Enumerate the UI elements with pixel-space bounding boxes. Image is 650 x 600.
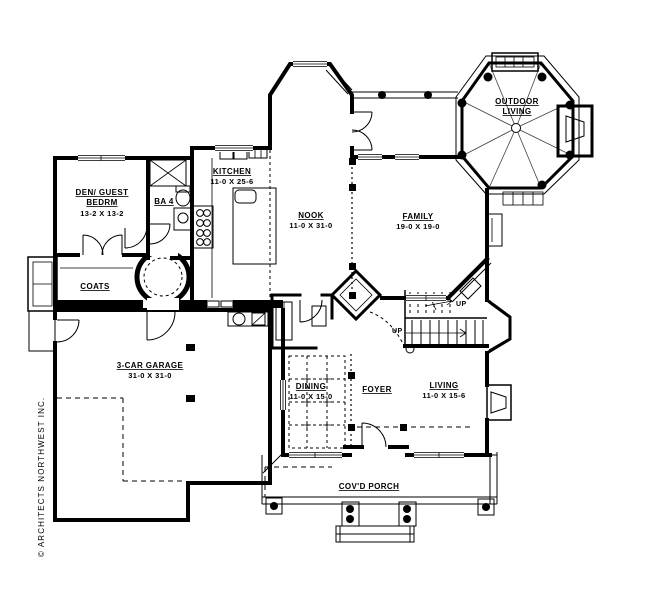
family-media-recess: [487, 214, 502, 246]
label-family-dims: 19-0 X 19-0: [396, 222, 440, 231]
dining-coffer-grid: [289, 356, 345, 448]
foyer-colonnade: [348, 354, 472, 448]
label-family: FAMILY: [403, 212, 434, 221]
label-coats: COATS: [80, 282, 110, 291]
stair-treads-lower: [412, 320, 483, 344]
covered-porch: [262, 452, 497, 542]
bath-door: [150, 224, 170, 244]
label-up-2: UP: [392, 328, 403, 335]
den-double-doors: [83, 235, 122, 255]
left-chimney: [28, 257, 57, 311]
label-dining: DINING: [296, 382, 326, 391]
toilet: [176, 186, 190, 206]
label-bath: BA 4: [154, 197, 174, 206]
powder-door: [300, 300, 322, 322]
hall-pocket-door: [207, 301, 219, 307]
garage-post: [186, 344, 195, 351]
octagon-center: [512, 124, 521, 133]
label-den-line2: BEDRM: [86, 198, 117, 207]
label-den-dims: 13-2 X 13-2: [80, 209, 124, 218]
label-dining-dims: 11-0 X 15-0: [289, 392, 332, 401]
label-garage: 3-CAR GARAGE: [117, 361, 184, 370]
nook-french-doors: [352, 112, 372, 150]
label-outdoor-line1: OUTDOOR: [495, 97, 539, 106]
linen-closet: [150, 160, 186, 186]
pantry-powder: [272, 271, 380, 348]
label-garage-dims: 31-0 X 31-0: [128, 371, 172, 380]
rotunda-door: [147, 312, 175, 340]
outdoor-fireplace: [558, 106, 592, 156]
label-outdoor-line2: LIVING: [502, 107, 531, 116]
copyright-text: © ARCHITECTS NORTHWEST INC.: [37, 397, 46, 557]
label-nook-dims: 11-0 X 31-0: [289, 221, 332, 230]
living-fireplace: [487, 385, 511, 420]
garage-post: [186, 395, 195, 402]
label-den-line1: DEN/ GUEST: [76, 188, 129, 197]
utility-equipment: [228, 312, 268, 326]
label-kitchen: KITCHEN: [213, 167, 251, 176]
garage-stoop: [29, 311, 55, 351]
front-door: [362, 423, 386, 447]
den-suite: [55, 148, 192, 300]
label-porch: COV'D PORCH: [339, 482, 400, 491]
floor-plan-sheet: DEN/ GUEST BEDRM 13-2 X 13-2 BA 4 COATS …: [0, 0, 650, 600]
floor-plan-drawing: DEN/ GUEST BEDRM 13-2 X 13-2 BA 4 COATS …: [0, 0, 650, 600]
garage-bay-ceiling-dash: [57, 398, 186, 481]
label-foyer: FOYER: [362, 385, 392, 394]
entry-rotunda: [137, 246, 189, 340]
garage-walls: [29, 303, 270, 520]
hall-door: [125, 226, 147, 248]
label-nook: NOOK: [298, 211, 324, 220]
bath-vanity: [174, 208, 192, 230]
porch-columns: [266, 498, 494, 526]
outdoor-living-octagon: [456, 53, 592, 205]
garage-side-door: [57, 320, 79, 342]
label-up-1: UP: [456, 301, 467, 308]
outdoor-strip-railing: [326, 66, 458, 99]
label-living: LIVING: [429, 381, 458, 390]
wall-ovens: [193, 206, 213, 248]
label-living-dims: 11-0 X 15-6: [422, 391, 465, 400]
label-kitchen-dims: 11-0 X 25-6: [210, 177, 253, 186]
porch-steps: [336, 526, 414, 542]
hall-pocket-door: [221, 301, 233, 307]
